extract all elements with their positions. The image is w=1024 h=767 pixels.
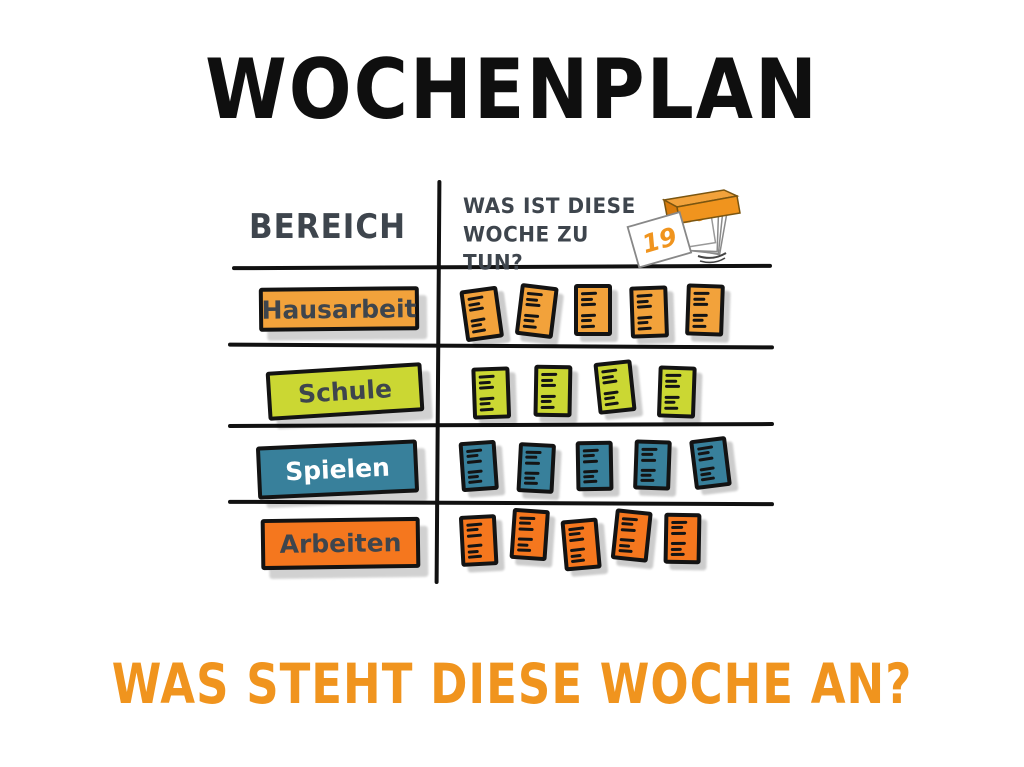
note-scribble-line (471, 323, 482, 328)
note-scribble-line (583, 459, 598, 463)
note-scribble-line (468, 301, 480, 306)
note-scribble-line (466, 454, 478, 458)
notes-row-schule (472, 361, 696, 413)
note-scribble-line (581, 324, 595, 327)
note-scribble-line (603, 390, 618, 395)
note-scribble-line (467, 459, 482, 463)
sticky-note (509, 508, 549, 561)
note-scribble-line (671, 547, 682, 550)
note-scribble-line (466, 523, 482, 527)
note-scribble-line (671, 526, 683, 529)
tear-off-calendar-icon: 20 19 (622, 176, 742, 268)
note-scribble-line (698, 456, 713, 461)
note-scribble-line (620, 538, 635, 542)
note-scribble-line (467, 544, 482, 548)
sticky-note (633, 439, 672, 490)
sticky-note (657, 365, 697, 418)
footer-question: WAS STEHT DIESE WOCHE AN? (0, 652, 1024, 717)
note-scribble-line (641, 458, 656, 461)
note-scribble-line (583, 469, 598, 473)
note-scribble-line (518, 538, 533, 541)
note-scribble-line (517, 549, 531, 552)
note-scribble-line (519, 527, 534, 530)
note-scribble-line (524, 471, 539, 474)
note-scribble-line (523, 324, 537, 328)
note-scribble-line (583, 475, 594, 478)
note-scribble-line (468, 550, 479, 554)
note-scribble-line (569, 537, 584, 542)
sticky-note (560, 517, 601, 571)
note-scribble-line (480, 407, 494, 411)
note-scribble-line (641, 469, 656, 472)
note-scribble-line (570, 553, 581, 557)
note-scribble-line (671, 521, 687, 524)
note-scribble-line (700, 466, 715, 471)
note-scribble-line (637, 299, 649, 303)
note-scribble-line (526, 297, 538, 301)
sticky-note (533, 365, 572, 418)
note-scribble-line (541, 405, 555, 408)
sticky-note (459, 440, 499, 492)
note-scribble-line (601, 368, 617, 373)
note-scribble-line (541, 378, 553, 381)
note-scribble-line (698, 451, 710, 456)
note-scribble-line (479, 402, 490, 406)
note-scribble-line (637, 315, 652, 319)
sticky-note (459, 286, 504, 343)
note-scribble-line (517, 543, 528, 546)
note-scribble-line (602, 374, 614, 379)
note-scribble-line (665, 395, 680, 398)
note-scribble-line (527, 292, 543, 296)
note-scribble-line (693, 313, 708, 316)
note-scribble-line (664, 401, 675, 404)
note-scribble-line (541, 400, 552, 403)
sticky-note (471, 366, 511, 419)
note-scribble-line (671, 553, 685, 556)
note-scribble-line (621, 528, 636, 532)
note-scribble-line (697, 445, 713, 450)
sticky-note (576, 441, 614, 492)
note-scribble-line (541, 394, 556, 397)
note-scribble-line (665, 374, 681, 377)
note-scribble-line (479, 375, 495, 379)
column-header-bereich: BEREICH (240, 208, 415, 247)
sticky-note (459, 514, 499, 567)
note-scribble-line (581, 297, 593, 300)
note-scribble-line (621, 523, 633, 527)
note-scribble-line (470, 317, 485, 323)
note-scribble-line (693, 303, 708, 306)
note-scribble-line (700, 472, 711, 476)
row-label-arbeiten: Arbeiten (261, 517, 421, 570)
note-scribble-line (641, 453, 653, 456)
column-header-todo-line1: WAS IST DIESE (463, 192, 648, 220)
note-scribble-line (479, 386, 494, 390)
sticky-note (574, 284, 612, 336)
note-scribble-line (638, 326, 652, 330)
note-scribble-line (701, 477, 715, 482)
note-scribble-line (636, 294, 652, 298)
note-scribble-line (693, 319, 704, 322)
note-scribble-line (467, 533, 482, 537)
note-scribble-line (693, 297, 705, 300)
notes-row-hausarbeit (462, 283, 724, 335)
row-label-hausarbeit: Hausarbeit (259, 286, 419, 332)
note-scribble-line (665, 385, 680, 388)
sticky-note (593, 359, 636, 415)
note-scribble-line (524, 482, 538, 485)
table-line-under-row-1 (228, 343, 774, 350)
note-scribble-line (619, 544, 630, 548)
note-scribble-line (583, 454, 595, 457)
note-scribble-line (525, 456, 537, 459)
note-scribble-line (570, 548, 585, 553)
note-scribble-line (604, 396, 615, 401)
note-scribble-line (479, 380, 491, 384)
note-scribble-line (479, 396, 494, 400)
notes-row-arbeiten (460, 512, 701, 563)
note-scribble-line (523, 319, 534, 323)
note-scribble-line (525, 461, 540, 464)
note-scribble-line (526, 451, 542, 454)
note-scribble-line (569, 532, 581, 536)
table-line-under-row-3 (228, 500, 774, 506)
note-scribble-line (694, 292, 710, 295)
note-scribble-line (468, 475, 479, 479)
table-vertical-divider (435, 180, 442, 584)
note-scribble-line (692, 324, 706, 327)
column-header-todo: WAS IST DIESE WOCHE ZU TUN? (463, 192, 648, 277)
note-scribble-line (467, 295, 483, 301)
note-scribble-line (467, 469, 482, 473)
note-scribble-line (602, 379, 617, 384)
note-scribble-line (637, 305, 652, 309)
note-scribble-line (525, 303, 540, 307)
note-scribble-line (519, 522, 531, 525)
note-scribble-line (583, 480, 597, 483)
note-scribble-line (641, 474, 652, 477)
note-scribble-line (622, 517, 638, 521)
sticky-note (611, 508, 653, 563)
sticky-note (516, 442, 556, 494)
page-title: WOCHENPLAN (0, 42, 1024, 138)
note-scribble-line (581, 319, 592, 322)
note-scribble-line (618, 549, 632, 553)
weekly-plan-poster: WOCHENPLAN BEREICH WAS IST DIESE WOCHE Z… (0, 0, 1024, 767)
note-scribble-line (524, 313, 539, 317)
sticky-note (629, 285, 669, 338)
sticky-note (689, 436, 732, 490)
note-scribble-line (469, 306, 484, 312)
note-scribble-line (524, 477, 535, 480)
note-scribble-line (671, 532, 686, 535)
note-scribble-line (581, 313, 596, 317)
row-label-schule: Schule (266, 362, 425, 421)
note-scribble-line (466, 448, 482, 452)
sticky-note (515, 283, 559, 339)
note-scribble-line (472, 328, 486, 333)
note-scribble-line (568, 526, 584, 531)
note-scribble-line (641, 448, 657, 451)
note-scribble-line (581, 303, 596, 307)
table-line-under-row-2 (228, 422, 774, 428)
note-scribble-line (640, 479, 654, 482)
note-scribble-line (605, 401, 619, 406)
note-scribble-line (664, 406, 678, 409)
note-scribble-line (519, 517, 535, 520)
note-scribble-line (583, 449, 599, 453)
row-label-spielen: Spielen (256, 439, 419, 499)
sticky-note (685, 283, 725, 336)
note-scribble-line (468, 555, 482, 559)
note-scribble-line (541, 384, 556, 387)
notes-row-spielen (460, 438, 729, 488)
note-scribble-line (467, 528, 479, 532)
sticky-note (664, 513, 702, 565)
note-scribble-line (637, 321, 648, 325)
note-scribble-line (665, 379, 677, 382)
note-scribble-line (468, 480, 482, 484)
column-header-todo-line2: WOCHE ZU TUN? (463, 220, 648, 277)
note-scribble-line (671, 542, 686, 545)
note-scribble-line (581, 292, 597, 296)
note-scribble-line (541, 373, 557, 376)
note-scribble-line (571, 559, 585, 564)
